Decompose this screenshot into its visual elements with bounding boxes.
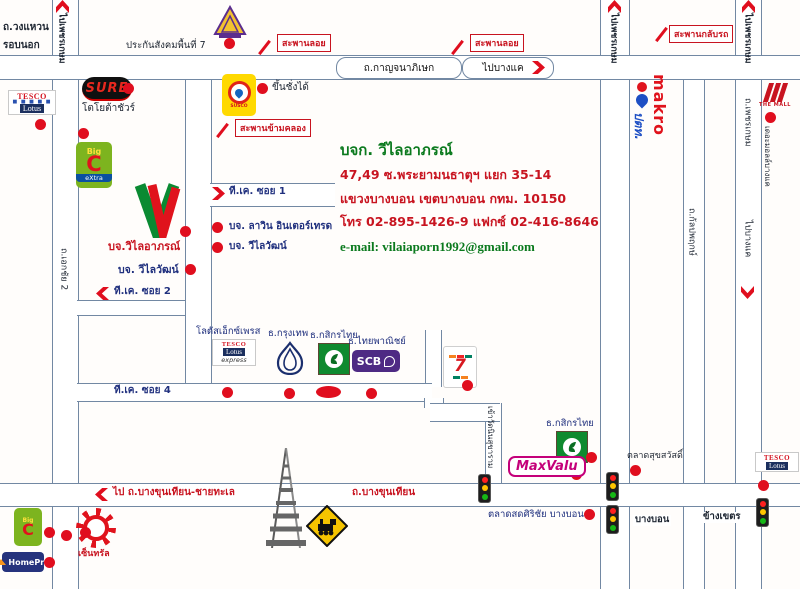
canal-bridge-label: สะพานข้ามคลอง <box>235 119 311 137</box>
sso-label: ประกันสังคมพื้นที่ 7 <box>126 41 206 52</box>
route-dot <box>462 380 473 391</box>
social-security-office-icon <box>213 5 247 39</box>
bangbon-direction-map: ถ.วงแหวนรอบนอก ไปเพชรเกษม ประกันสังคมพื้… <box>0 0 800 589</box>
route-dot <box>257 83 268 94</box>
wat-road-label: เข้าวัดนินสุขาราม <box>486 406 495 468</box>
big-c-extra-logo: Big C eXtra <box>76 142 112 188</box>
lawin-intertrade-label: บจ. ลาวิน อินเตอร์เทรด <box>229 221 332 233</box>
traffic-light-icon <box>478 474 491 503</box>
route-dot <box>61 530 72 541</box>
route-dot <box>44 557 55 568</box>
route-dot <box>584 509 595 520</box>
company-address-line2: แขวงบางบอน เขตบางบอน กทม. 10150 <box>340 193 610 206</box>
toyota-sure-label: โตโยต้าชัวร์ <box>82 103 135 115</box>
overpass-label-1: สะพานลอย <box>277 34 331 52</box>
talad-sirichai-label: ตลาดสดศิริชัย บางบอน <box>488 510 584 521</box>
ekachai2-road-label: ถ.เอกชัย 2 <box>58 248 68 290</box>
the-mall-side-label: เดอะมอลล์บางแค <box>763 126 772 187</box>
tk-soi2-label: ที.เค. ซอย 2 <box>114 286 171 298</box>
kanlapaphruek-road-label: ถ.กัลปพฤกษ์ <box>686 208 696 256</box>
route-dot <box>586 452 597 463</box>
road-seven-stub <box>425 330 442 387</box>
route-dot <box>316 386 341 398</box>
route-dot <box>758 480 769 491</box>
company-name: บจก. วีไลอาภรณ์ <box>340 143 610 158</box>
left-road-to-phetkasem-label: ไปเพชรเกษม <box>56 13 66 64</box>
traffic-light-icon <box>606 505 619 534</box>
company-phone: โทร 02-895-1426-9 แฟกซ์ 02-416-8646 <box>340 216 610 229</box>
company-address-line1: 47,49 ซ.พระยามนธาตุฯ แยก 35-14 <box>340 169 610 182</box>
the-mall-logo: THE MALL <box>756 80 794 110</box>
bridge-tick-icon <box>451 40 464 55</box>
lotus-express-label: โลตัสเอ็กซ์เพรส <box>196 327 260 338</box>
scb-bank-label: ธ.ไทยพาณิชย์ <box>348 337 406 348</box>
central-label: เซ็นทรัล <box>78 549 110 559</box>
bangkhunthian-road-label: ถ.บางขุนเทียน <box>352 487 415 499</box>
route-dot <box>212 242 223 253</box>
vilaiaporn-company-logo <box>134 180 182 238</box>
route-dot <box>185 264 196 275</box>
ptt-label: ปตท. <box>630 112 649 140</box>
wilaiwat-left-label: บจ. วีไลวัฒน์ <box>118 264 179 276</box>
route-dot <box>35 119 46 130</box>
route-dot <box>44 527 55 538</box>
lotus-express-logo: TESCO Lotus express <box>212 339 256 366</box>
bangbon-road-to-phetkasem-label: ไปเพชรเกษม <box>608 13 618 64</box>
uturn-bridge-label: สะพานกลับรถ <box>669 25 733 43</box>
route-dot <box>366 388 377 399</box>
company-email: e-mail: vilaiaporn1992@gmail.com <box>340 240 610 253</box>
outer-ring-road-label: ถ.วงแหวนรอบนอก <box>3 22 49 51</box>
bridge-tick-icon <box>258 40 271 55</box>
homepro-logo: HomePro <box>2 552 44 572</box>
bridge-tick-icon <box>655 27 668 42</box>
tesco-lotus-logo-bottomright: TESCO Lotus <box>755 452 799 472</box>
phetkasem-road-to-phetkasem-label: ไปเพชรเกษม <box>742 13 752 64</box>
train-crossing-sign-icon <box>306 505 348 547</box>
traffic-light-icon <box>606 472 619 501</box>
route-dot <box>180 226 191 237</box>
phetkasem-road-name-label: ถ.เพชรเกษม <box>742 98 752 147</box>
bridge-tick-icon <box>216 123 229 138</box>
bangkok-bank-logo <box>276 341 304 375</box>
kanchanaphisek-road-label: ถ.กาญจนาภิเษก <box>336 57 462 79</box>
route-dot <box>80 527 91 538</box>
maxvalu-logo: MaxValu <box>508 456 586 477</box>
vilaiaporn-map-label: บจ.วิไลอาภรณ์ <box>108 241 180 254</box>
route-dot <box>123 83 134 94</box>
big-c-small-logo: Big C <box>14 508 42 546</box>
route-dot <box>78 128 89 139</box>
to-bangkhae-down-label: ไปบางแค <box>742 220 752 257</box>
road-kanlapaphruek-vertical <box>683 55 705 589</box>
route-dot <box>765 112 776 123</box>
route-dot <box>284 388 295 399</box>
khang-khet-gap-label: ข้างเขตร <box>701 512 742 523</box>
tk-soi1-label: ที.เค. ซอย 1 <box>229 186 286 198</box>
weigh-note-label: ขึ้นชั่งได้ <box>272 82 309 94</box>
route-dot <box>212 222 223 233</box>
tk-soi4-label: ที.เค. ซอย 4 <box>114 385 171 397</box>
talad-suksawat-label: ตลาดสุขสวัสดิ์ <box>627 451 683 461</box>
kasikorn-bank-logo <box>318 343 350 375</box>
arrow-left-soi2-icon <box>96 287 109 300</box>
road-tk-soi2 <box>77 300 185 316</box>
kasikorn-bank2-label: ธ.กสิกรไทย <box>546 419 594 430</box>
route-dot <box>630 465 641 476</box>
route-dot <box>222 387 233 398</box>
route-dot <box>224 38 235 49</box>
overpass-label-2: สะพานลอย <box>470 34 524 52</box>
bangbon-gap-label: บางบอน <box>633 515 671 526</box>
tesco-lotus-logo-topleft: TESCO ■ ■ ■ ■ ■ Lotus <box>8 90 56 115</box>
company-info-box: บจก. วีไลอาภรณ์ 47,49 ซ.พระยามนธาตุฯ แยก… <box>340 143 610 264</box>
traffic-light-icon <box>756 498 769 527</box>
makro-label: makro <box>650 74 669 136</box>
bangkok-bank-label: ธ.กรุงเทพ <box>268 329 308 340</box>
to-bangkhunthian-seaside-label: ไป ถ.บางขุนเทียน-ชายทะเล <box>113 487 235 499</box>
scb-bank-logo: SCB <box>352 350 400 372</box>
susco-gas-station-logo: SUSCO <box>222 74 256 116</box>
wilaiwat-right-label: บจ. วีไลวัฒน์ <box>229 241 287 253</box>
